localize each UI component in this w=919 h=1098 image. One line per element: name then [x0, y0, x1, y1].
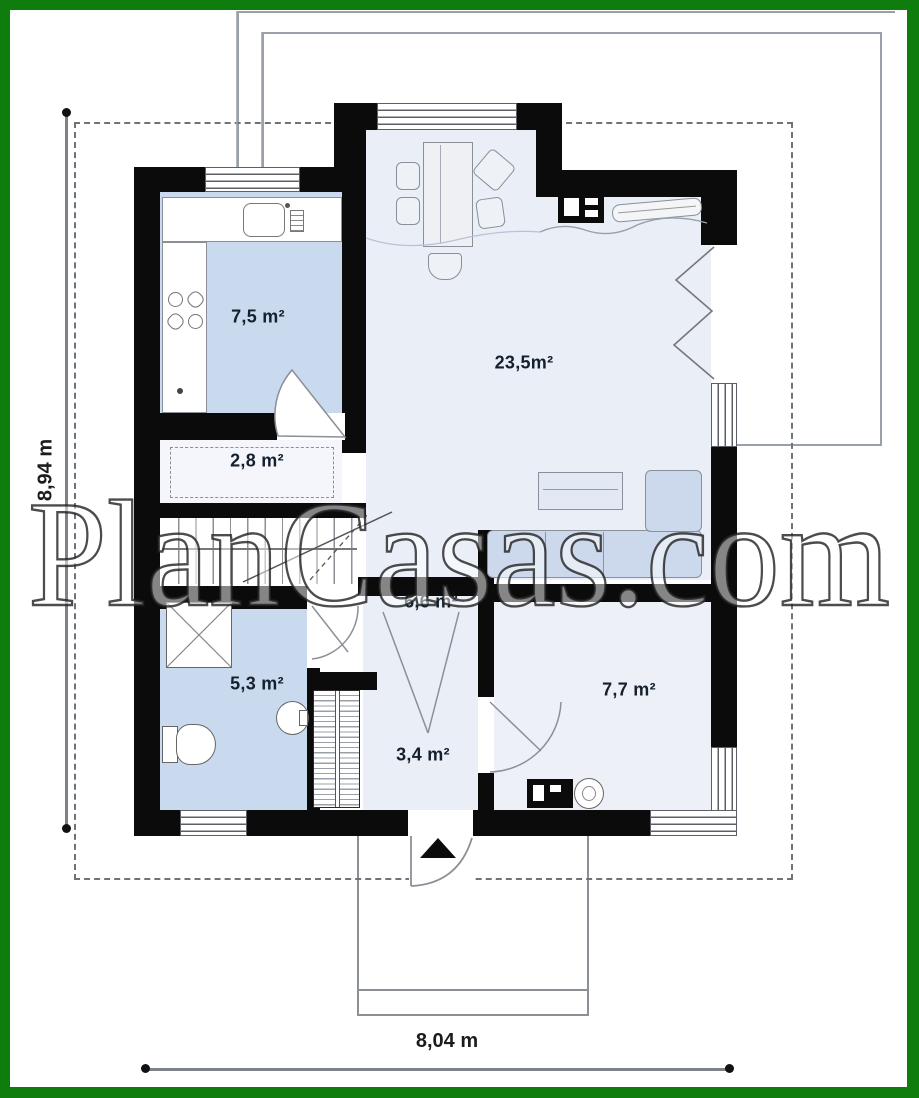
bathroom-area-label: 5,3 m²	[230, 674, 284, 695]
entrance-arrow-icon	[420, 838, 456, 858]
living-area-label: 23,5m²	[495, 353, 554, 374]
floor-plan-canvas: 8,94 m 8,04 m	[0, 0, 919, 1098]
closet-area-label: 2,8 m²	[230, 451, 284, 472]
bedroom-area-label: 7,7 m²	[602, 680, 656, 701]
kitchen-area-label: 7,5 m²	[231, 307, 285, 328]
plan-linework	[0, 0, 919, 1098]
entry-area-label: 3,4 m²	[396, 745, 450, 766]
width-dimension-label: 8,04 m	[416, 1030, 478, 1053]
height-dimension-label: 8,94 m	[35, 439, 58, 501]
hall-area-label: 6,6 m²	[404, 592, 458, 613]
